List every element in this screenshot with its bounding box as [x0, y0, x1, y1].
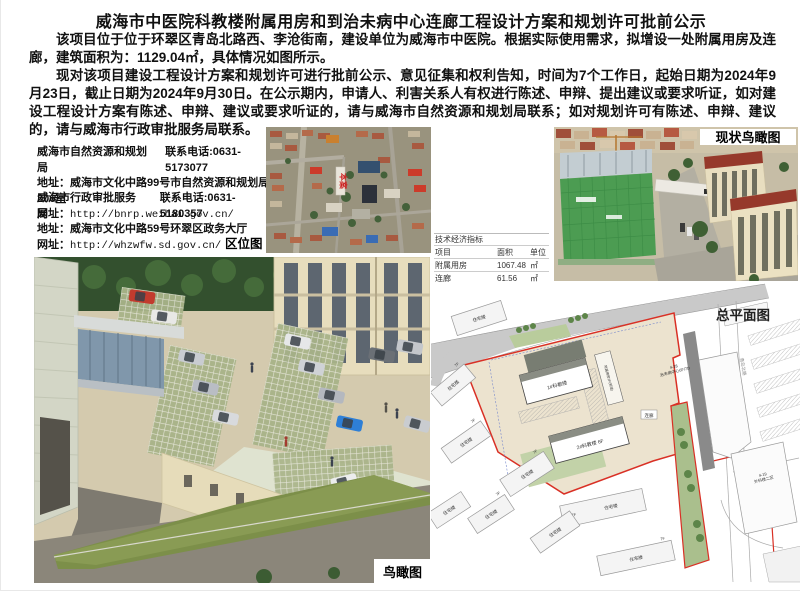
- location-map-label: 区位图: [225, 233, 263, 252]
- indicators-title: 技术经济指标: [434, 234, 549, 246]
- svg-text:连廊: 连廊: [645, 412, 654, 419]
- existing-building-left: [34, 257, 78, 525]
- current-aerial-image: 现状鸟瞰图: [554, 127, 798, 281]
- site-plan-label: 总平面图: [716, 307, 770, 323]
- location-map-image: 本案: [266, 127, 431, 253]
- agency-phone: 联系电话:0631-5180357: [160, 191, 277, 222]
- intro-paragraph-1: 该项目位于位于环翠区青岛北路西、李沧街南，建设单位为威海市中医院。根据实际使用需…: [29, 31, 776, 67]
- notice-page: 威海市中医院科教楼附属用房和到治未病中心连廊工程设计方案和规划许可批前公示 该项…: [0, 0, 800, 591]
- current-aerial-svg: 现状鸟瞰图: [554, 127, 798, 281]
- agency-website-url: http://whzwfw.sd.gov.cn/: [70, 240, 221, 252]
- current-aerial-label: 现状鸟瞰图: [715, 130, 780, 145]
- corridor-plan: 连廊: [641, 410, 657, 419]
- construction-building: [558, 135, 658, 265]
- aerial-label: 现状鸟瞰图: [700, 129, 796, 145]
- page-title: 威海市中医院科教楼附属用房和到治未病中心连廊工程设计方案和规划许可批前公示: [1, 8, 800, 32]
- table-row: 附属用房 1067.48 ㎡: [434, 259, 549, 272]
- indicators-table: 技术经济指标 项目 面积 单位 附属用房 1067.48 ㎡ 连廊 61.56 …: [434, 233, 549, 285]
- agency-phone: 联系电话:0631-5173077: [165, 145, 277, 176]
- intro-text: 该项目位于位于环翠区青岛北路西、李沧街南，建设单位为威海市中医院。根据实际使用需…: [29, 31, 776, 139]
- site-plan-svg: 青岛北路: [431, 282, 800, 583]
- table-header-row: 项目 面积 单位: [434, 246, 549, 259]
- agency-name: 威海市行政审批服务局: [37, 191, 146, 222]
- rendering-svg: [34, 257, 430, 583]
- location-map-svg: 本案: [266, 127, 431, 253]
- rendering-image: [34, 257, 430, 583]
- site-marker-text: 本案: [339, 172, 349, 190]
- rendering-label: 鸟瞰图: [374, 559, 431, 583]
- site-plan-image: 青岛北路: [431, 282, 800, 583]
- agency-name: 威海市自然资源和规划局: [37, 145, 151, 176]
